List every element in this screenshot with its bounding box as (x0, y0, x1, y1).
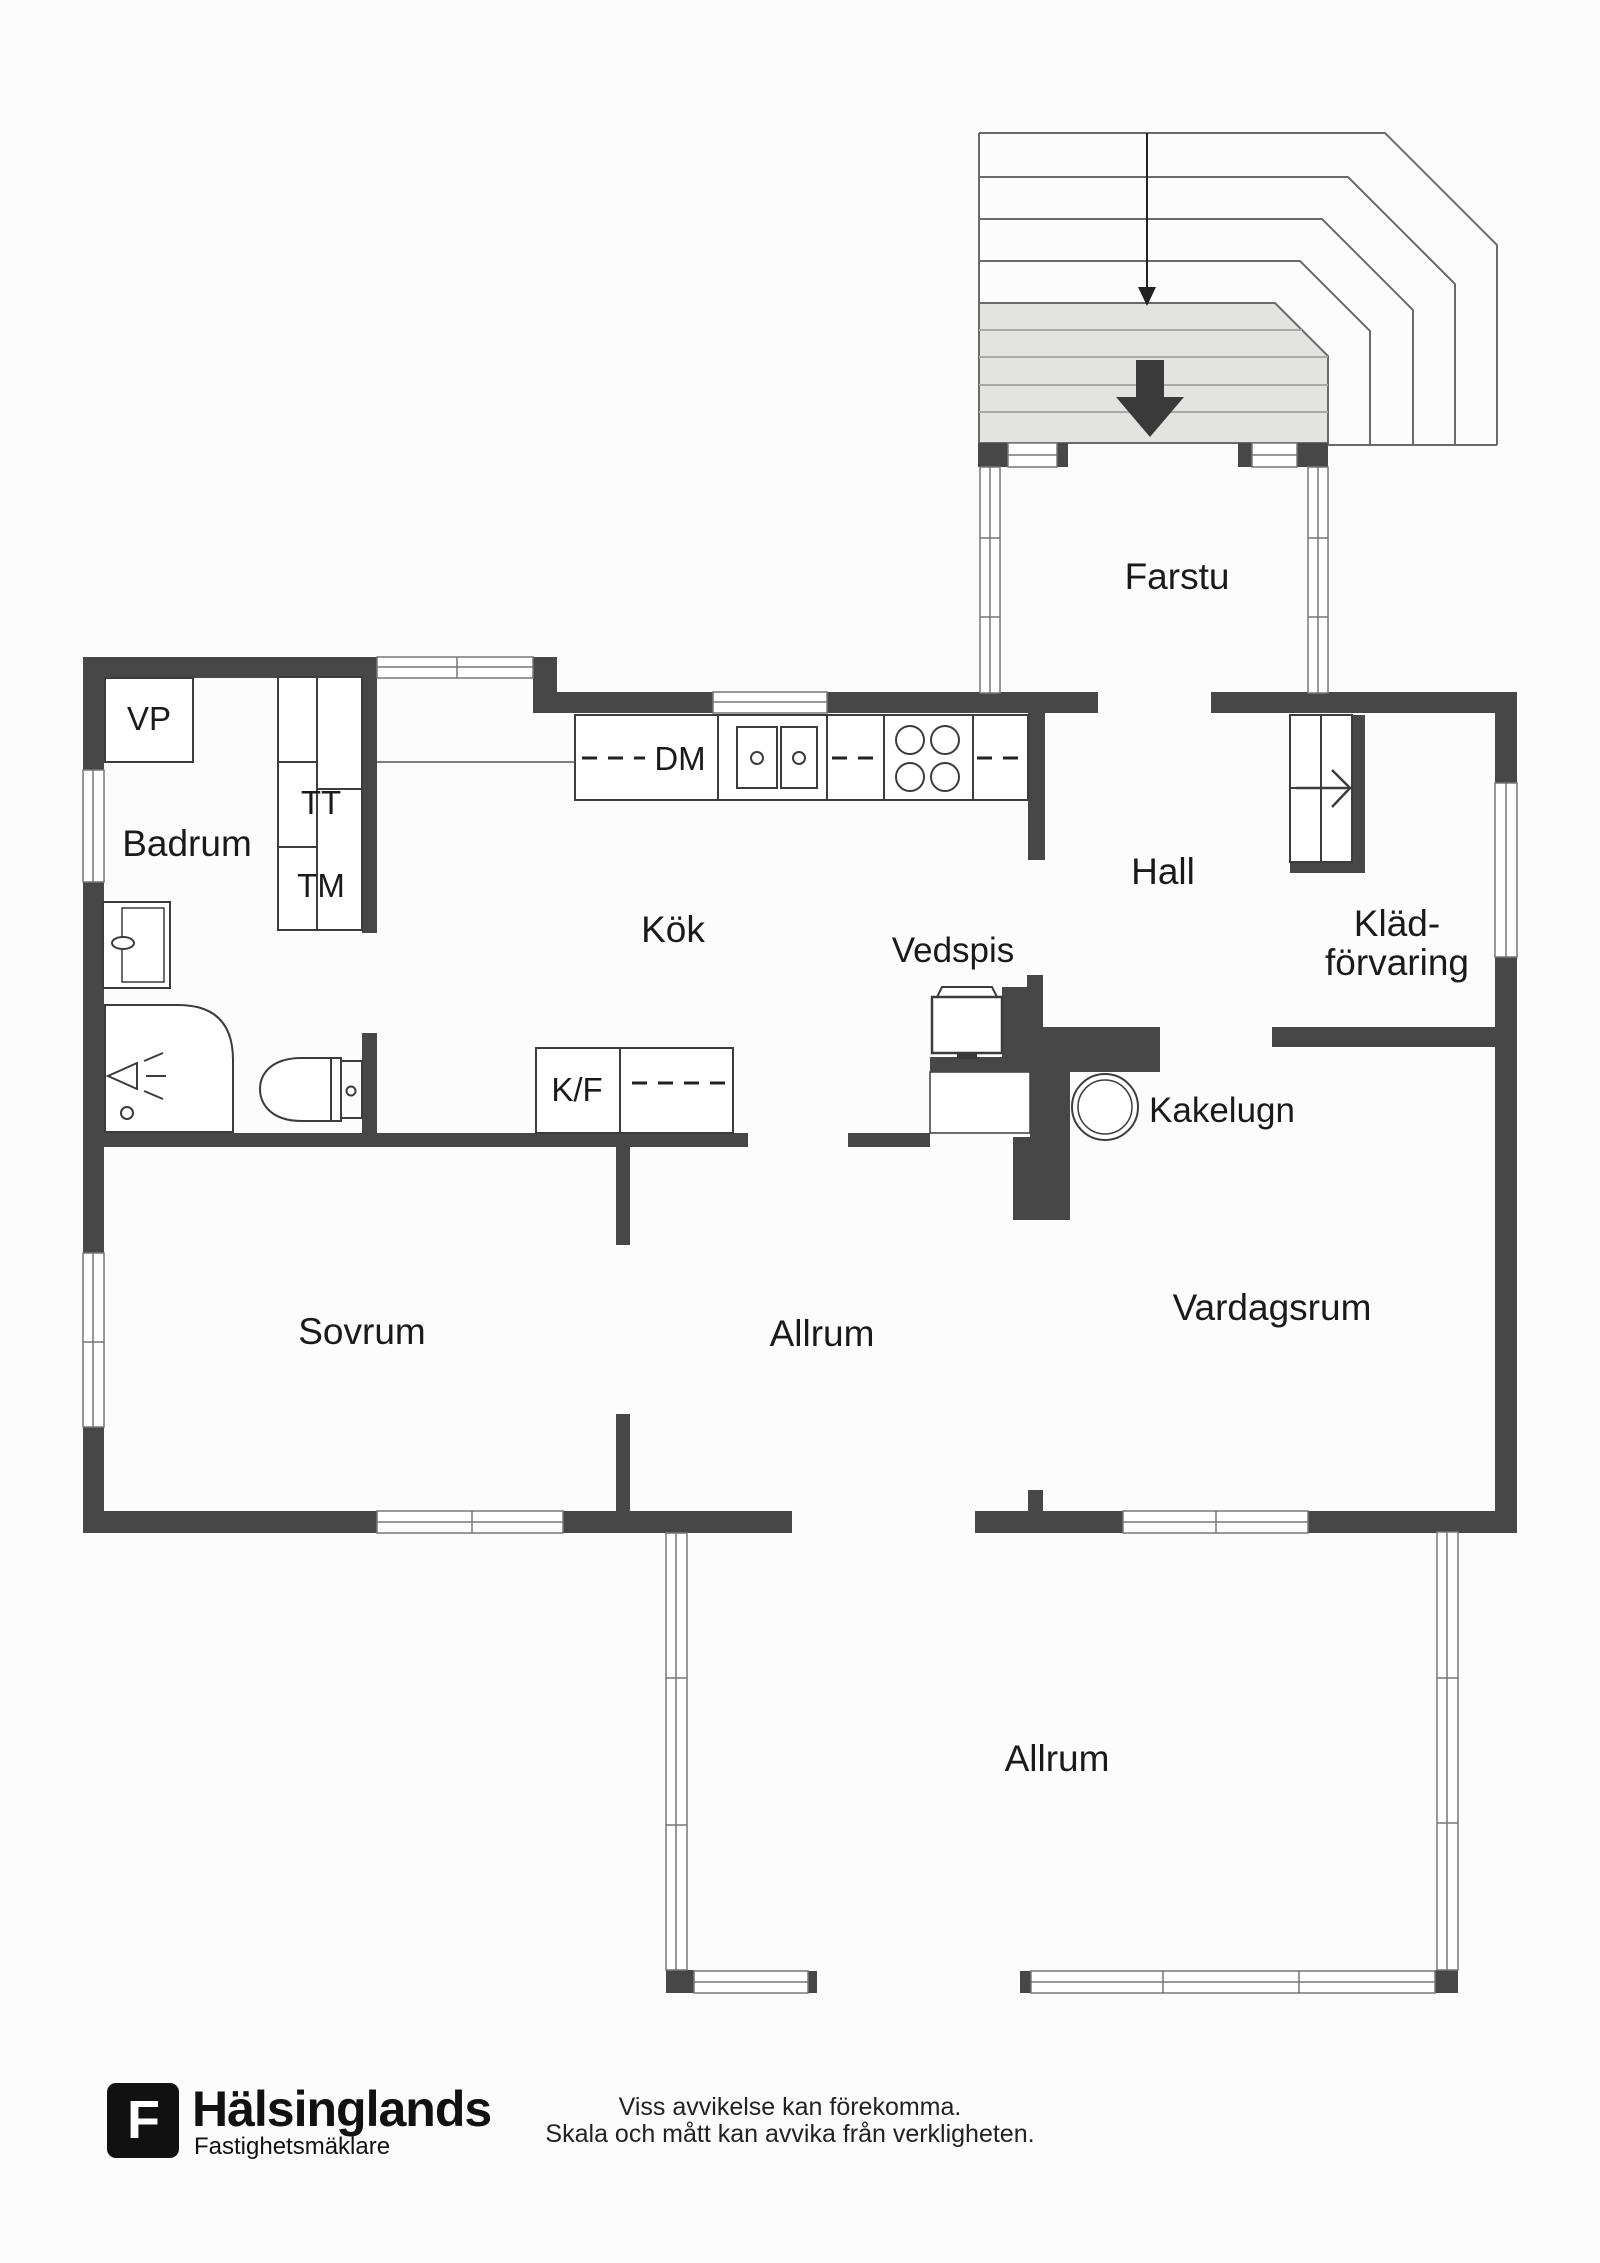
window-klad-east (1495, 783, 1517, 957)
glass-wall-allrum-west (666, 1533, 687, 1970)
shower (105, 1005, 233, 1132)
window-farstu-east (1308, 467, 1328, 693)
label-kf: K/F (551, 1071, 602, 1109)
window-allrum-south-left (694, 1971, 808, 1993)
floor-plan-drawing (0, 0, 1600, 2263)
disclaimer-line1: Viss avvikelse kan förekomma. (619, 2093, 962, 2122)
room-label-sovrum: Sovrum (298, 1311, 425, 1353)
broker-subtitle: Fastighetsmäklare (194, 2133, 390, 2161)
broker-name: Hälsinglands (192, 2080, 491, 2138)
room-label-kladforvaring-line2: förvaring (1325, 942, 1469, 984)
upper-floor-stairs (1290, 715, 1352, 862)
room-label-hall: Hall (1131, 851, 1195, 893)
wood-stove (932, 987, 1002, 1059)
label-vedspis: Vedspis (892, 931, 1015, 971)
window-farstu-top-left (1008, 443, 1057, 467)
room-label-badrum: Badrum (122, 823, 252, 865)
tiled-stove (1072, 1074, 1138, 1140)
glass-wall-allrum-east (1437, 1532, 1458, 1970)
kitchen-sink (737, 727, 817, 788)
chimney-niche (930, 1072, 1030, 1133)
label-tm: TM (297, 867, 345, 905)
window-badrum-west (83, 770, 104, 882)
room-label-allrum-lower: Allrum (1005, 1738, 1110, 1780)
label-vp: VP (127, 700, 171, 738)
exterior-walls (83, 443, 1517, 1993)
room-label-kladforvaring-line1: Kläd- (1354, 903, 1440, 945)
bathroom-sink (103, 902, 170, 988)
room-label-allrum-upper: Allrum (770, 1313, 875, 1355)
room-label-vardagsrum: Vardagsrum (1173, 1287, 1372, 1329)
window-farstu-west (980, 467, 1000, 693)
label-kakelugn: Kakelugn (1149, 1091, 1295, 1131)
window-top-left (377, 657, 533, 678)
floor-plan-page: Farstu Badrum Kök Hall Kläd- förvaring S… (0, 0, 1600, 2263)
broker-logo-letter: F (127, 2089, 160, 2151)
toilet (260, 1058, 362, 1121)
broker-logo: F (107, 2083, 179, 2158)
window-allrum-south-right (1031, 1971, 1435, 1993)
disclaimer-line2: Skala och mått kan avvika från verklighe… (545, 2120, 1034, 2149)
window-vardagsrum-south (1123, 1511, 1308, 1533)
room-label-farstu: Farstu (1125, 556, 1230, 598)
label-dm: DM (654, 740, 705, 778)
window-farstu-top-right (1252, 443, 1297, 467)
window-sovrum-west (83, 1253, 104, 1427)
label-tt: TT (301, 784, 341, 822)
window-sovrum-south (377, 1511, 563, 1533)
window-kitchen (713, 692, 827, 713)
room-label-kok: Kök (641, 909, 705, 951)
